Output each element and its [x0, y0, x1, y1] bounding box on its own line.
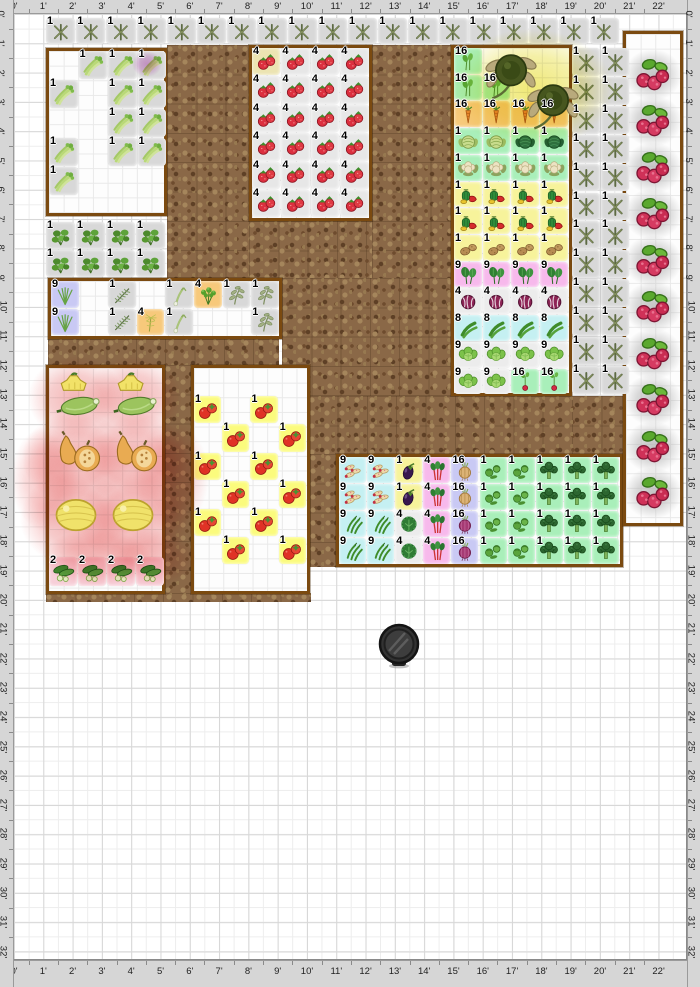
ruler-tick	[497, 9, 498, 13]
plant-count: 16	[452, 508, 464, 520]
ruler-tick	[439, 961, 440, 965]
plant-count: 1	[470, 15, 476, 27]
ruler-tick	[9, 29, 13, 30]
plant-count: 4	[253, 45, 259, 57]
ruler-tick	[29, 9, 30, 13]
ruler-tick	[556, 961, 557, 965]
ruler-tick	[175, 9, 176, 13]
plant-count: 1	[593, 481, 599, 493]
ruler-tick	[688, 263, 692, 264]
plant-count: 4	[341, 102, 347, 114]
plant-count: 1	[602, 103, 608, 115]
ruler-tick	[9, 468, 13, 469]
ruler-tick	[688, 204, 692, 205]
ruler-tick	[527, 9, 528, 13]
ruler-tick	[556, 9, 557, 13]
plant-count: 9	[484, 339, 490, 351]
plant-count: 1	[537, 535, 543, 547]
ruler-tick	[688, 790, 692, 791]
plant-count: 9	[52, 306, 58, 318]
plant-count: 1	[565, 508, 571, 520]
ruler-tick	[380, 9, 381, 13]
ruler-label: 14'	[0, 418, 9, 430]
plant-count: 1	[509, 481, 515, 493]
plant-count: 9	[368, 508, 374, 520]
ruler-tick	[688, 29, 692, 30]
ruler-label: 4'	[683, 128, 694, 135]
ruler-label: 31'	[686, 916, 697, 928]
plant-count: 16	[541, 366, 553, 378]
ruler-label: 29'	[686, 857, 697, 869]
ruler-label: 2'	[69, 966, 76, 977]
plant-count: 1	[481, 481, 487, 493]
ruler-label: 12'	[359, 1, 371, 12]
plant-count: 1	[223, 534, 229, 546]
plant-count: 4	[253, 130, 259, 142]
ruler-tick	[58, 9, 59, 13]
ruler-tick	[9, 439, 13, 440]
plant-count: 1	[512, 179, 518, 191]
ruler-label: 26'	[686, 770, 697, 782]
plant-count: 1	[139, 135, 145, 147]
ruler-tick	[204, 9, 205, 13]
ruler-tick	[58, 961, 59, 965]
ruler-label: 13'	[389, 1, 401, 12]
ruler-tick	[9, 322, 13, 323]
ruler-label: 1'	[0, 40, 6, 47]
ruler-tick	[410, 9, 411, 13]
ruler-tick	[9, 292, 13, 293]
plant-count: 1	[223, 478, 229, 490]
plant-count: 1	[512, 125, 518, 137]
plant-count: 1	[541, 179, 547, 191]
plant-count: 4	[341, 159, 347, 171]
ruler-tick	[9, 703, 13, 704]
plant-count: 4	[253, 73, 259, 85]
ruler-label: 6'	[186, 966, 193, 977]
ruler-label: 4'	[0, 128, 6, 135]
ruler-label: 9'	[683, 274, 694, 281]
plant-count: 4	[396, 535, 402, 547]
ruler-label: 20'	[594, 966, 606, 977]
plant-count: 4	[312, 187, 318, 199]
plant-count: 8	[484, 312, 490, 324]
ruler-tick	[292, 961, 293, 965]
ruler-label: 4'	[128, 966, 135, 977]
ruler-tick	[9, 87, 13, 88]
plan-area[interactable]: 1111111111111111111111111111111111111119…	[13, 13, 687, 960]
ruler-label: 10'	[301, 966, 313, 977]
plant-count: 9	[541, 259, 547, 271]
ruler-label: 14'	[418, 1, 430, 12]
plant-count: 1	[251, 393, 257, 405]
ruler-label: 28'	[0, 828, 9, 840]
plant-count: 1	[602, 74, 608, 86]
ruler-label: 25'	[686, 740, 697, 752]
ruler-label: 11'	[0, 330, 8, 342]
ruler-tick	[688, 439, 692, 440]
ruler-tick	[9, 234, 13, 235]
ruler-label: 10'	[0, 301, 9, 313]
plant-count: 1	[602, 190, 608, 202]
plant-count: 9	[368, 454, 374, 466]
ruler-tick	[688, 644, 692, 645]
plant-count: 1	[280, 534, 286, 546]
plant-count: 1	[481, 535, 487, 547]
ruler-label: 20'	[686, 594, 697, 606]
plant-count: 1	[573, 247, 579, 259]
ruler-tick	[497, 961, 498, 965]
plant-count: 1	[593, 454, 599, 466]
ruler-label: 28'	[686, 828, 697, 840]
plant-count: 1	[541, 152, 547, 164]
ruler-tick	[688, 117, 692, 118]
ruler-tick	[688, 497, 692, 498]
plant-count: 9	[512, 339, 518, 351]
ruler-tick	[9, 175, 13, 176]
ruler-label: 22'	[0, 652, 9, 664]
plant-count: 1	[396, 454, 402, 466]
plant-count: 1	[109, 77, 115, 89]
ruler-label: 7'	[683, 216, 694, 223]
ruler-label: 22'	[652, 966, 664, 977]
ruler-label: 7'	[216, 1, 223, 12]
plant-count: 1	[573, 218, 579, 230]
plant-count: 9	[340, 535, 346, 547]
plant-count: 1	[509, 454, 515, 466]
plant-count: 1	[484, 179, 490, 191]
ruler-tick	[380, 961, 381, 965]
ruler-label: 20'	[594, 1, 606, 12]
plant-count: 1	[573, 363, 579, 375]
ruler-label: 19'	[564, 1, 576, 12]
plant-count: 16	[512, 366, 524, 378]
ruler-label: 14'	[686, 418, 697, 430]
ruler-tick	[146, 9, 147, 13]
plant-count: 9	[541, 339, 547, 351]
ruler-label: 15'	[686, 447, 697, 459]
ruler-tick	[29, 961, 30, 965]
plant-count: 4	[396, 508, 402, 520]
ruler-label: 5'	[157, 966, 164, 977]
ruler-label: 16'	[686, 477, 697, 489]
ruler-label: 21'	[623, 966, 635, 977]
plant-count: 1	[166, 278, 172, 290]
ruler-tick	[9, 263, 13, 264]
plant-count: 8	[455, 312, 461, 324]
plant-count: 1	[573, 132, 579, 144]
plant-count: 1	[541, 125, 547, 137]
plant-count: 1	[455, 125, 461, 137]
plant-count: 1	[481, 508, 487, 520]
plant-count: 8	[541, 312, 547, 324]
plant-count: 1	[166, 306, 172, 318]
plant-count: 4	[424, 481, 430, 493]
plant-count: 4	[253, 159, 259, 171]
ruler-tick	[688, 937, 692, 938]
plant-count: 1	[602, 334, 608, 346]
ruler-label: 16'	[477, 1, 489, 12]
ruler-tick	[9, 732, 13, 733]
plant-count: 1	[280, 421, 286, 433]
ruler-tick	[234, 961, 235, 965]
plant-count: 4	[341, 73, 347, 85]
ruler-label: 17'	[0, 506, 9, 518]
plant-count: 1	[573, 190, 579, 202]
ruler-tick	[644, 9, 645, 13]
ruler-label: 13'	[389, 966, 401, 977]
ruler-label: 23'	[0, 682, 9, 694]
plant-count: 16	[455, 98, 467, 110]
ruler-label: 13'	[0, 389, 9, 401]
plant-count: 1	[455, 232, 461, 244]
ruler-label: 25'	[0, 740, 9, 752]
plant-count: 9	[340, 481, 346, 493]
plant-count: 1	[602, 132, 608, 144]
plant-count: 1	[198, 15, 204, 27]
plant-count: 1	[139, 48, 145, 60]
grill-icon	[375, 621, 423, 671]
plant-count: 9	[340, 454, 346, 466]
ruler-label: 1'	[40, 966, 47, 977]
ruler-tick	[688, 234, 692, 235]
ruler-label: 18'	[535, 966, 547, 977]
ruler-label: 32'	[686, 945, 697, 957]
ruler-label: 1'	[40, 1, 47, 12]
ruler-tick	[9, 908, 13, 909]
plant-count: 1	[109, 278, 115, 290]
plant-count: 1	[440, 15, 446, 27]
ruler-tick	[9, 351, 13, 352]
ruler-tick	[615, 961, 616, 965]
plant-count: 1	[602, 305, 608, 317]
plant-count: 4	[282, 102, 288, 114]
plant-count: 16	[541, 98, 553, 110]
ruler-tick	[585, 9, 586, 13]
ruler-tick	[87, 9, 88, 13]
plant-count: 1	[139, 106, 145, 118]
plant-count: 1	[280, 478, 286, 490]
plant-count: 1	[537, 454, 543, 466]
ruler-tick	[351, 9, 352, 13]
plant-count: 4	[424, 535, 430, 547]
ruler-tick	[688, 673, 692, 674]
plant-count: 4	[282, 159, 288, 171]
plant-count: 1	[47, 247, 53, 259]
ruler-tick	[644, 961, 645, 965]
ruler-tick	[9, 380, 13, 381]
ruler-tick	[688, 878, 692, 879]
ruler-tick	[468, 961, 469, 965]
ruler-label: 11'	[330, 1, 342, 12]
plant-count: 1	[77, 15, 83, 27]
plant-count: 16	[452, 454, 464, 466]
plant-count: 1	[252, 278, 258, 290]
plant-count: 9	[368, 535, 374, 547]
ruler-label: 0'	[0, 10, 6, 17]
plant-count: 1	[573, 74, 579, 86]
plant-count: 1	[593, 508, 599, 520]
ruler-tick	[688, 468, 692, 469]
plant-count: 1	[80, 48, 86, 60]
ruler-tick	[9, 820, 13, 821]
ruler-tick	[410, 961, 411, 965]
ruler-label: 13'	[686, 389, 697, 401]
ruler-tick	[688, 703, 692, 704]
ruler-tick	[117, 9, 118, 13]
ruler-tick	[688, 527, 692, 528]
ruler-label: 31'	[0, 916, 9, 928]
ruler-label: 15'	[0, 447, 9, 459]
ruler-tick	[9, 644, 13, 645]
plant-count: 1	[512, 232, 518, 244]
plant-count: 9	[512, 259, 518, 271]
plant-count: 1	[228, 15, 234, 27]
ruler-label: 8'	[245, 1, 252, 12]
plant-count: 9	[340, 508, 346, 520]
plant-count: 1	[195, 393, 201, 405]
plant-count: 4	[253, 102, 259, 114]
ruler-label: 10'	[301, 1, 313, 12]
plant-count: 9	[484, 366, 490, 378]
plant-count: 4	[341, 130, 347, 142]
plant-count: 4	[282, 187, 288, 199]
grill[interactable]	[375, 621, 423, 671]
plant-count: 4	[312, 73, 318, 85]
ruler-label: 18'	[0, 535, 9, 547]
plant-count: 4	[424, 508, 430, 520]
ruler-tick	[688, 820, 692, 821]
ruler-tick	[688, 58, 692, 59]
ruler-tick	[439, 9, 440, 13]
ruler-tick	[9, 117, 13, 118]
plant-count: 16	[452, 481, 464, 493]
ruler-label: 16'	[477, 966, 489, 977]
ruler-tick	[9, 527, 13, 528]
plant-count: 9	[52, 278, 58, 290]
plant-count: 1	[50, 135, 56, 147]
ruler-label: 21'	[0, 623, 9, 635]
ruler-label: 6'	[186, 1, 193, 12]
plant-count: 4	[312, 130, 318, 142]
garden-planner-app: 1111111111111111111111111111111111111119…	[0, 0, 700, 987]
plant-count: 4	[541, 285, 547, 297]
plant-count: 4	[282, 73, 288, 85]
ruler-label: 2'	[69, 1, 76, 12]
plant-count: 1	[573, 161, 579, 173]
ruler-label: 27'	[0, 799, 9, 811]
plant-count: 1	[481, 454, 487, 466]
ruler-tick	[117, 961, 118, 965]
ruler-tick	[585, 961, 586, 965]
ruler-tick	[688, 585, 692, 586]
plant-count: 1	[602, 218, 608, 230]
ruler-label: 24'	[686, 711, 697, 723]
plant-count: 4	[312, 102, 318, 114]
plant-count: 1	[109, 135, 115, 147]
plant-count: 1	[223, 421, 229, 433]
plant-count: 1	[602, 247, 608, 259]
ruler-tick	[322, 961, 323, 965]
ruler-label: 4'	[128, 1, 135, 12]
ruler-tick	[615, 9, 616, 13]
plant-count: 1	[139, 77, 145, 89]
plant-count: 1	[47, 15, 53, 27]
plant-count: 1	[565, 454, 571, 466]
plant-count: 1	[409, 15, 415, 27]
plant-count: 1	[560, 15, 566, 27]
ruler-label: 14'	[418, 966, 430, 977]
plant-count: 1	[251, 450, 257, 462]
ruler-label: 16'	[0, 477, 9, 489]
plant-count: 1	[252, 306, 258, 318]
plant-count: 2	[79, 554, 85, 566]
ruler-label: 0'	[683, 10, 694, 17]
plant-count: 1	[602, 363, 608, 375]
plant-count: 1	[47, 219, 53, 231]
plant-count: 16	[455, 72, 467, 84]
plant-count: 4	[424, 454, 430, 466]
plant-count: 4	[195, 278, 201, 290]
plant-count: 1	[109, 106, 115, 118]
plant-count: 4	[455, 285, 461, 297]
ruler-label: 6'	[0, 186, 6, 193]
plant-count: 9	[455, 339, 461, 351]
plant-count: 4	[138, 306, 144, 318]
ruler-label: 30'	[0, 887, 9, 899]
ruler-label: 17'	[506, 966, 518, 977]
ruler-label: 23'	[686, 682, 697, 694]
ruler-label: 12'	[686, 359, 697, 371]
plant-count: 1	[484, 125, 490, 137]
ruler-tick	[688, 146, 692, 147]
ruler-tick	[175, 961, 176, 965]
ruler-tick	[688, 175, 692, 176]
ruler-label: 17'	[506, 1, 518, 12]
plant-count: 1	[379, 15, 385, 27]
ruler-tick	[688, 615, 692, 616]
ruler-label: 27'	[686, 799, 697, 811]
plant-count: 16	[484, 72, 496, 84]
ruler-tick	[688, 351, 692, 352]
plant-count: 4	[484, 285, 490, 297]
plant-count: 1	[319, 15, 325, 27]
ruler-tick	[9, 615, 13, 616]
plant-count: 16	[484, 98, 496, 110]
plant-count: 4	[341, 187, 347, 199]
ruler-label: 5'	[0, 157, 6, 164]
plant-count: 1	[109, 306, 115, 318]
ruler-label: 22'	[652, 1, 664, 12]
plant-count: 1	[573, 45, 579, 57]
ruler-label: 5'	[157, 1, 164, 12]
ruler-label: 29'	[0, 857, 9, 869]
ruler-tick	[688, 908, 692, 909]
plant-count: 1	[137, 247, 143, 259]
plant-count: 16	[512, 98, 524, 110]
plant-count: 1	[107, 247, 113, 259]
ruler-label: 21'	[686, 623, 697, 635]
plant-count: 1	[168, 15, 174, 27]
ruler-label: 18'	[686, 535, 697, 547]
plant-count: 2	[50, 554, 56, 566]
plant-count: 1	[512, 152, 518, 164]
plant-count: 9	[484, 259, 490, 271]
ruler-label: 7'	[216, 966, 223, 977]
plant-count: 1	[500, 15, 506, 27]
ruler-label: 3'	[98, 1, 105, 12]
ruler-tick	[292, 9, 293, 13]
